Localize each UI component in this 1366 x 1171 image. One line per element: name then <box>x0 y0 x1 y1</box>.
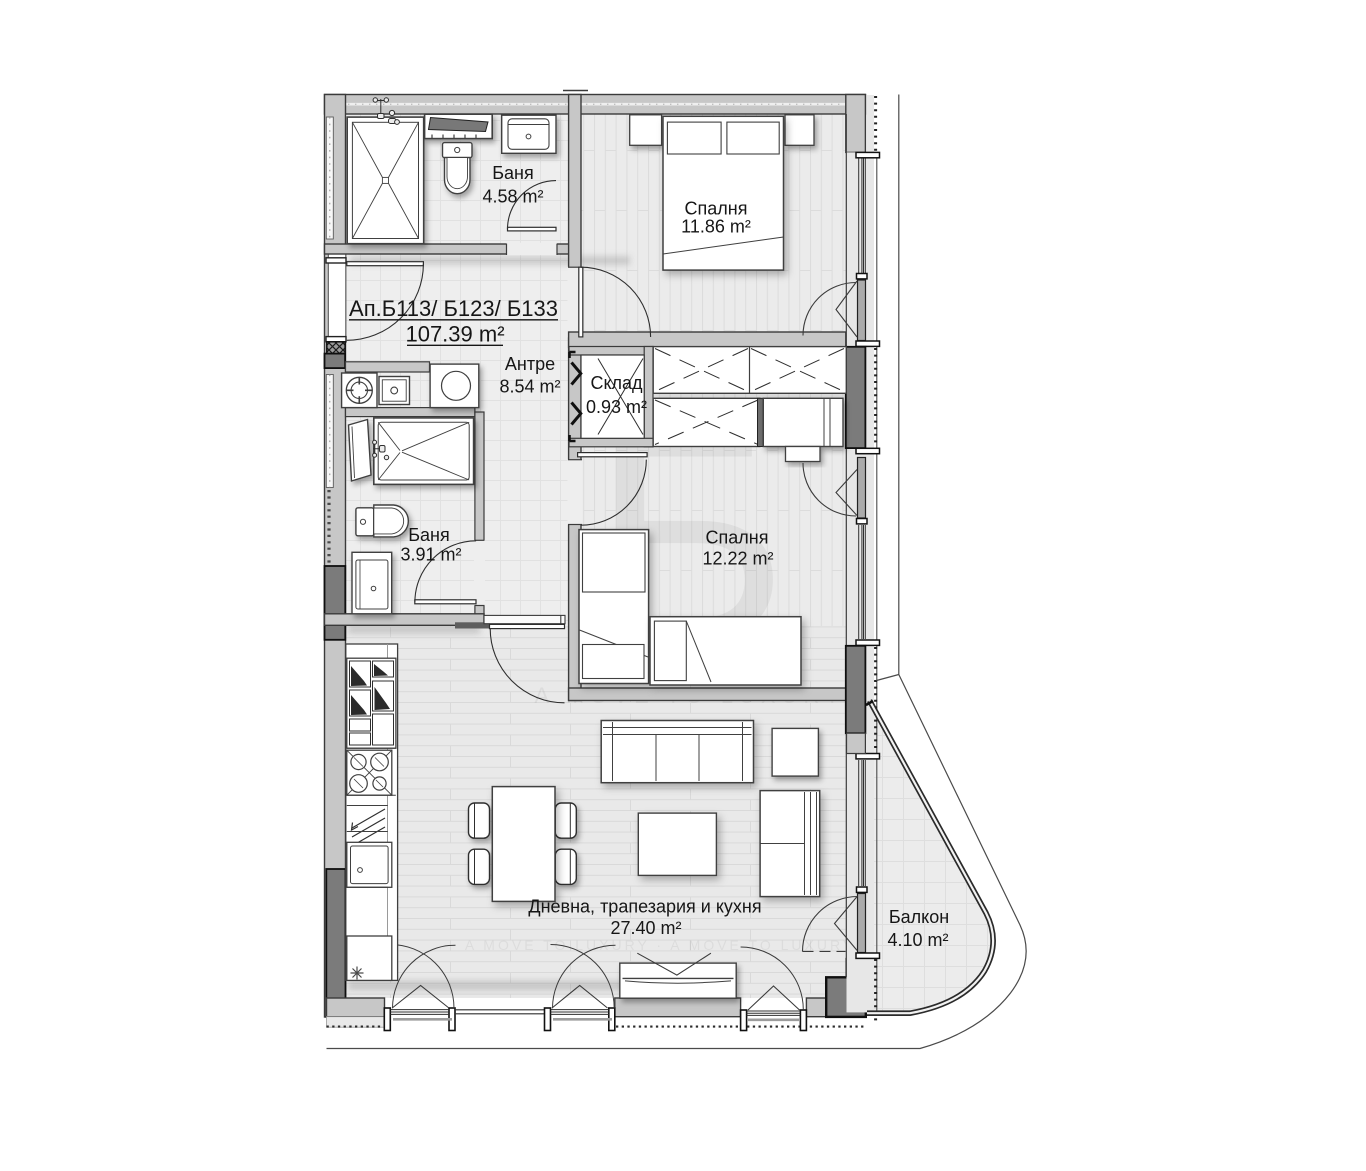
svg-text:Ап.Б113/ Б123/ Б133: Ап.Б113/ Б123/ Б133 <box>349 296 558 321</box>
svg-text:A MOVE TO LUXURY · A MOVE TO L: A MOVE TO LUXURY · A MOVE TO LUXURY <box>465 937 855 953</box>
svg-text:107.39 m²: 107.39 m² <box>405 322 504 347</box>
svg-text:Балкон: Балкон <box>889 907 949 927</box>
svg-text:3.91 m²: 3.91 m² <box>400 545 461 565</box>
svg-text:8.54 m²: 8.54 m² <box>499 377 560 397</box>
svg-text:Антре: Антре <box>505 354 555 374</box>
svg-text:Спалня: Спалня <box>706 528 769 548</box>
svg-text:Спалня: Спалня <box>685 199 748 219</box>
svg-text:Склад: Склад <box>590 373 643 393</box>
svg-text:Баня: Баня <box>492 163 534 183</box>
svg-text:11.86 m²: 11.86 m² <box>681 217 751 237</box>
svg-text:12.22 m²: 12.22 m² <box>702 549 773 569</box>
svg-text:4.10 m²: 4.10 m² <box>887 930 948 950</box>
svg-text:0.93 m²: 0.93 m² <box>586 397 647 417</box>
svg-text:Баня: Баня <box>408 525 450 545</box>
svg-text:Дневна, трапезария и кухня: Дневна, трапезария и кухня <box>528 897 761 917</box>
svg-text:27.40 m²: 27.40 m² <box>610 918 681 938</box>
svg-text:4.58 m²: 4.58 m² <box>482 187 543 207</box>
